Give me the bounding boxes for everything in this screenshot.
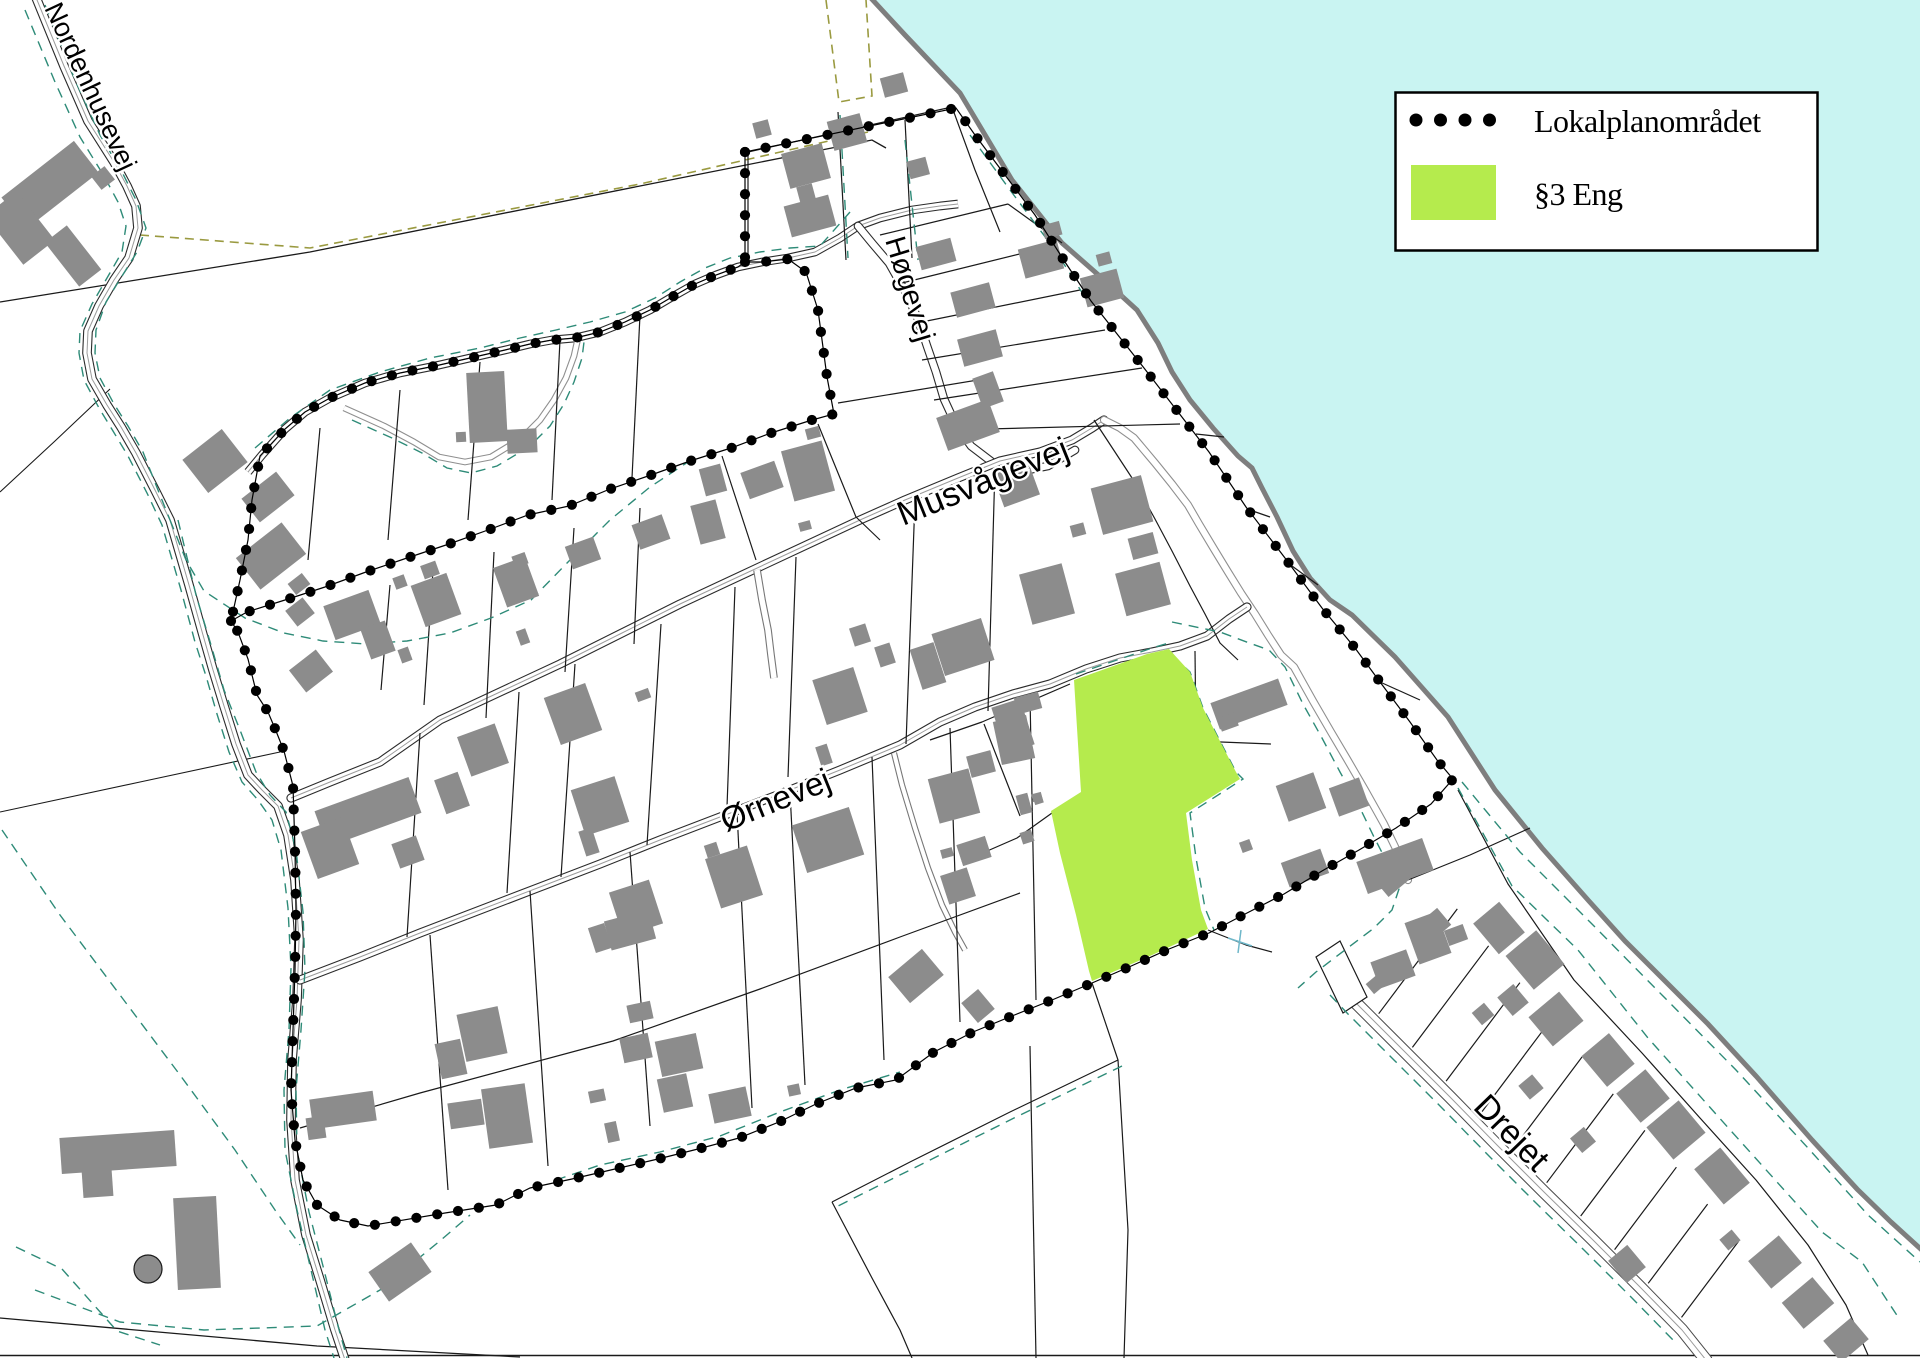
svg-text:Lokalplanområdet: Lokalplanområdet	[1534, 103, 1761, 139]
svg-text:§3 Eng: §3 Eng	[1534, 176, 1623, 212]
